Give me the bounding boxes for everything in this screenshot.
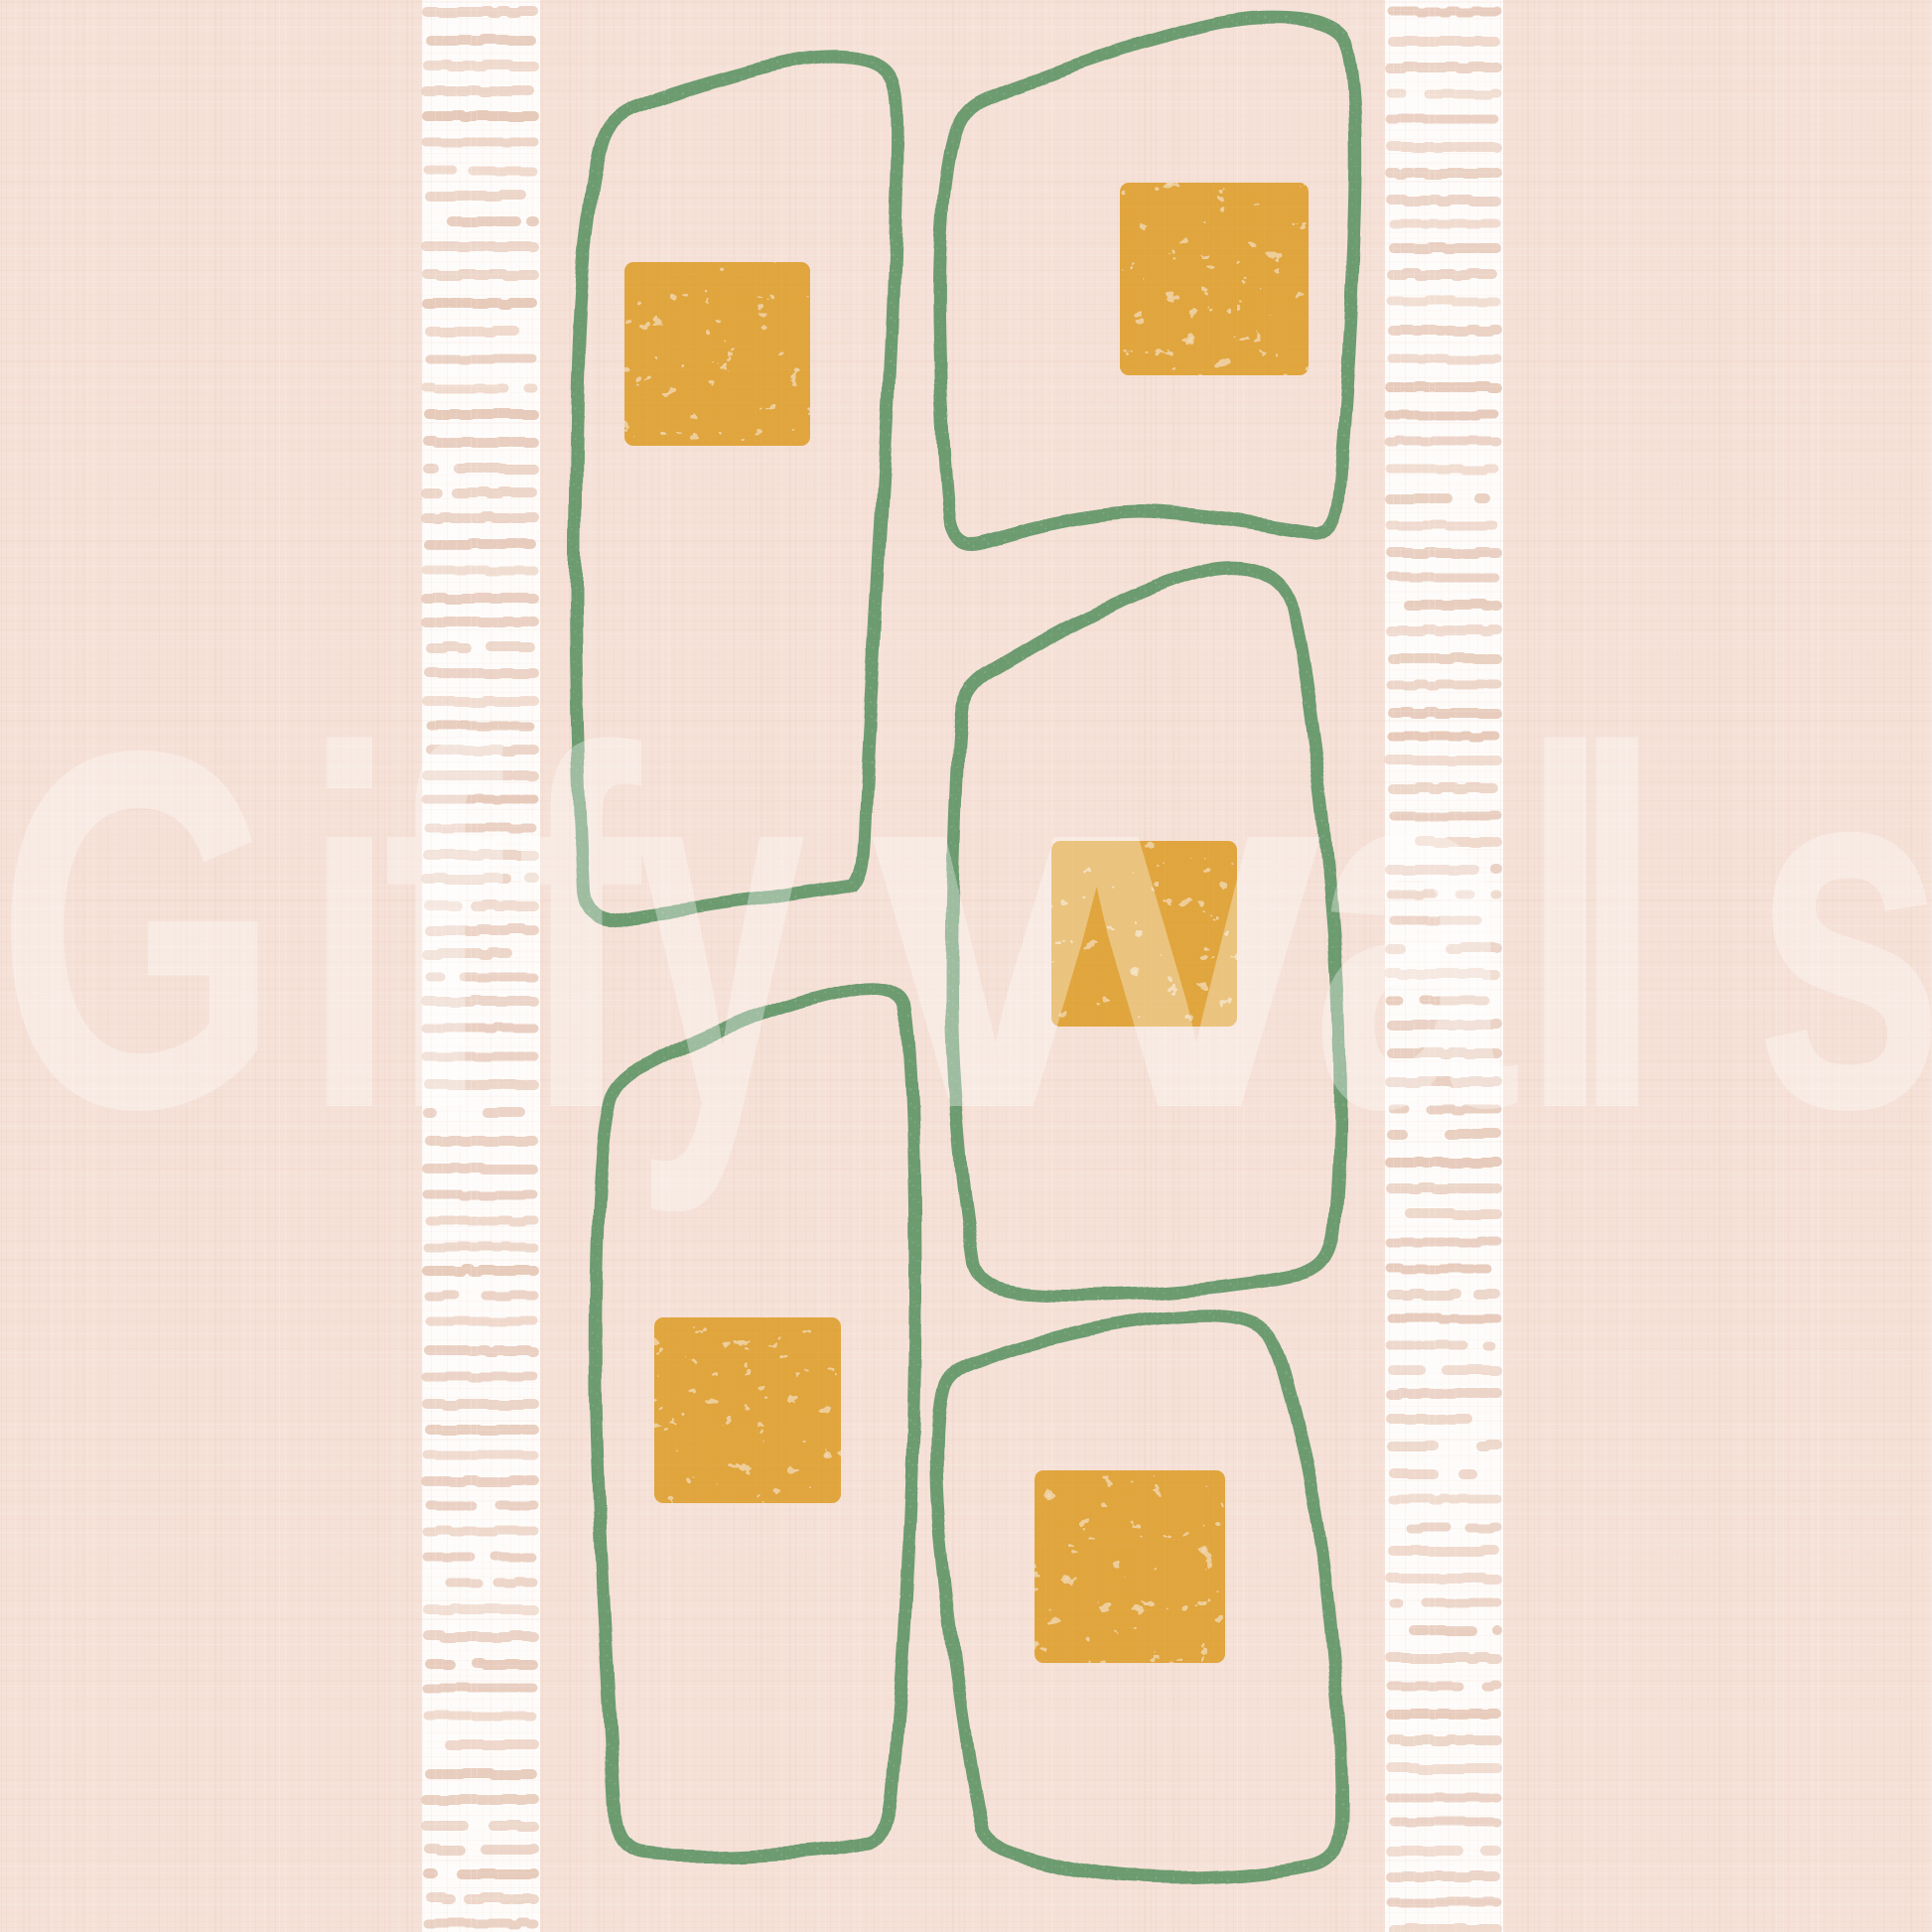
svg-text:G: G xyxy=(0,645,280,1215)
svg-text:s: s xyxy=(1753,645,1932,1214)
svg-text:l: l xyxy=(1575,645,1660,1215)
svg-text:a: a xyxy=(1311,644,1518,1214)
svg-text:f: f xyxy=(515,645,645,1214)
svg-text:f: f xyxy=(381,646,506,1214)
svg-text:y: y xyxy=(635,645,807,1218)
svg-text:w: w xyxy=(865,645,1321,1214)
